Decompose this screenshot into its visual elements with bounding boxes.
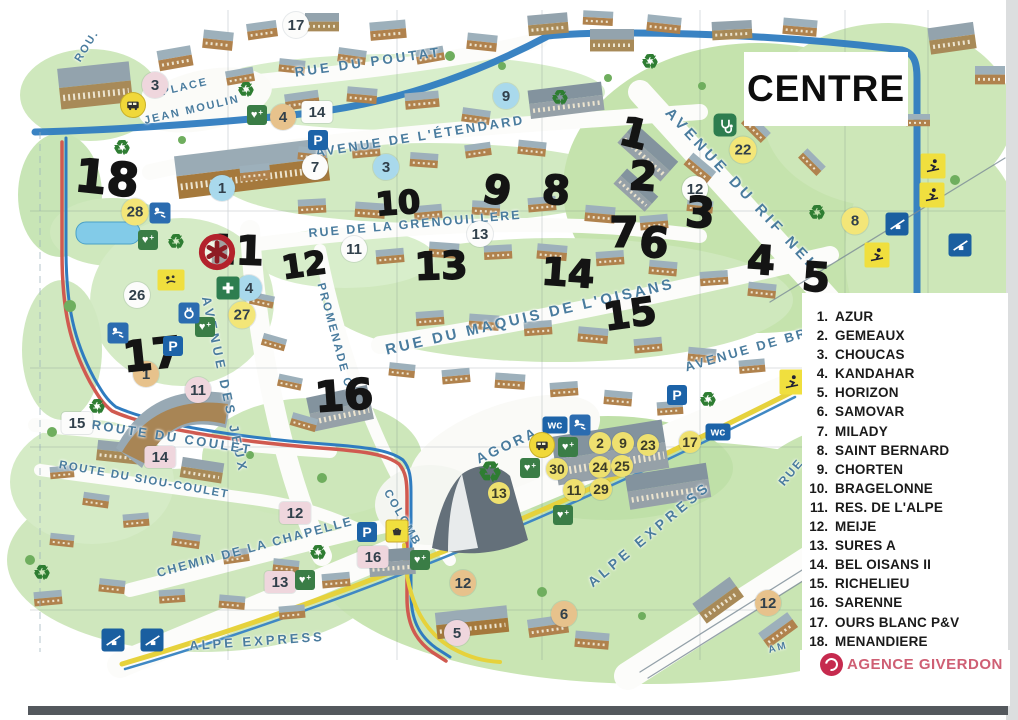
ski-jumper-icon <box>865 243 890 268</box>
wc-icon: wc <box>543 417 568 434</box>
legend-item-name: BEL OISANS II <box>835 557 931 572</box>
legend-item-number: 1. <box>802 309 835 324</box>
legend-item: 17.OURS BLANC P&V <box>802 615 1008 634</box>
legend-item-number: 17. <box>802 615 835 630</box>
parking-icon: P <box>308 130 328 150</box>
legend-item-name: RES. DE L'ALPE <box>835 500 943 515</box>
street-label: JEAN MOULIN <box>143 93 241 127</box>
plug-icon <box>179 303 200 324</box>
street-label: ALPE EXPRESS <box>189 629 325 653</box>
printed-marker: 4 <box>270 104 296 130</box>
legend-item: 3.CHOUCAS <box>802 347 1008 366</box>
plus-glyph: + <box>306 573 311 582</box>
printed-marker: 17 <box>283 12 309 38</box>
printed-marker: 1 <box>209 175 235 201</box>
street-label: AM <box>767 640 789 656</box>
bus-icon <box>120 92 146 118</box>
legend-item-name: AZUR <box>835 309 873 324</box>
legend-item-name: RICHELIEU <box>835 576 910 591</box>
pets-icon <box>158 270 185 291</box>
heart-icon: ♥+ <box>553 505 573 525</box>
agency-name: AGENCE GIVERDON <box>847 656 1003 673</box>
printed-marker: 12 <box>755 590 781 616</box>
printed-marker: 7 <box>302 154 328 180</box>
printed-marker: 30 <box>546 458 568 480</box>
legend-item-number: 14. <box>802 557 835 572</box>
legend-item-name: SURES A <box>835 538 896 553</box>
legend-item: 7.MILADY <box>802 424 1008 443</box>
printed-marker: 22 <box>730 137 757 164</box>
bus-icon <box>529 432 555 458</box>
heart-icon: ♥+ <box>558 437 578 457</box>
target-icon <box>196 231 238 273</box>
legend-item: 10.BRAGELONNE <box>802 481 1008 500</box>
legend-item-name: MILADY <box>835 424 888 439</box>
handwritten-number: 12 <box>280 246 329 284</box>
printed-marker: 13 <box>467 221 493 247</box>
printed-marker: 29 <box>590 478 612 500</box>
heart-icon: ♥+ <box>247 105 267 125</box>
recycle-icon: ♻ <box>641 50 659 75</box>
legend-item-number: 4. <box>802 366 835 381</box>
parking-icon: P <box>357 522 377 542</box>
legend-item-number: 13. <box>802 538 835 553</box>
printed-marker: 9 <box>493 83 519 109</box>
printed-marker: 5 <box>444 620 470 646</box>
printed-marker: 23 <box>637 434 659 456</box>
printed-marker: 2 <box>589 432 611 454</box>
legend-item-number: 16. <box>802 595 835 610</box>
legend-item-number: 11. <box>802 500 835 515</box>
legend-item: 13.SURES A <box>802 538 1008 557</box>
legend-list: 1.AZUR2.GEMEAUX3.CHOUCAS4.KANDAHAR5.HORI… <box>802 309 1008 653</box>
recycle-icon: ♻ <box>113 136 131 161</box>
recycle-icon: ♻ <box>699 388 717 413</box>
lift-icon <box>886 213 909 236</box>
parking-icon: P <box>667 385 687 405</box>
legend-item-number: 12. <box>802 519 835 534</box>
printed-marker: 3 <box>373 154 399 180</box>
lift-icon <box>949 234 972 257</box>
medic-icon <box>714 114 737 137</box>
wc-icon: wc <box>706 424 731 441</box>
printed-marker: 27 <box>229 302 256 329</box>
printed-marker: 14 <box>302 101 333 123</box>
agency-logo-icon <box>820 653 843 676</box>
printed-marker: 9 <box>612 432 634 454</box>
handwritten-number: 4 <box>746 240 777 282</box>
legend-item: 1.AZUR <box>802 309 1008 328</box>
printed-marker: 16 <box>358 546 389 568</box>
legend-item-name: SAINT BERNARD <box>835 443 949 458</box>
recycle-icon: ♻ <box>551 86 569 111</box>
street-label: AVENUE DE BRA <box>683 322 821 375</box>
handwritten-number: 2 <box>628 156 659 198</box>
handwritten-number: 13 <box>414 246 468 286</box>
legend-item-name: MEIJE <box>835 519 877 534</box>
legend-item: 5.HORIZON <box>802 385 1008 404</box>
legend-item: 12.MEIJE <box>802 519 1008 538</box>
legend-item-name: CHORTEN <box>835 462 903 477</box>
handwritten-number: 15 <box>601 292 659 337</box>
printed-marker: 4 <box>236 275 262 301</box>
legend-item-name: CHOUCAS <box>835 347 905 362</box>
printed-marker: 11 <box>185 377 211 403</box>
legend-item-name: SARENNE <box>835 595 902 610</box>
printed-marker: 3 <box>142 72 168 98</box>
handwritten-number: 14 <box>540 252 595 294</box>
legend-item-number: 9. <box>802 462 835 477</box>
snowboard-icon <box>920 183 945 208</box>
printed-marker: 6 <box>551 601 577 627</box>
plus-glyph: + <box>531 461 536 470</box>
legend-item-number: 7. <box>802 424 835 439</box>
lift-icon <box>102 629 125 652</box>
plus-glyph: + <box>206 320 211 329</box>
legend-item-name: HORIZON <box>835 385 899 400</box>
heart-icon: ♥+ <box>295 570 315 590</box>
legend-item-name: MENANDIERE <box>835 634 928 649</box>
pharmacy-icon <box>217 277 240 300</box>
recycle-icon: ♻ <box>167 230 185 255</box>
legend-panel: 1.AZUR2.GEMEAUX3.CHOUCAS4.KANDAHAR5.HORI… <box>802 293 1008 655</box>
printed-marker: 26 <box>124 282 150 308</box>
legend-item: 16.SARENNE <box>802 595 1008 614</box>
legend-item-name: SAMOVAR <box>835 404 904 419</box>
street-label: PLACE <box>161 76 210 98</box>
basket-icon <box>386 520 409 543</box>
recycle-icon: ♻ <box>309 541 327 566</box>
parking-icon: P <box>163 336 183 356</box>
handwritten-number: 3 <box>684 191 716 235</box>
baby-icon <box>150 203 171 224</box>
legend-item-number: 2. <box>802 328 835 343</box>
legend-item-number: 18. <box>802 634 835 649</box>
legend-item-name: BRAGELONNE <box>835 481 933 496</box>
heart-icon: ♥+ <box>138 230 158 250</box>
handwritten-number: 7 <box>609 212 638 254</box>
lift-icon <box>141 629 164 652</box>
legend-item: 9.CHORTEN <box>802 462 1008 481</box>
printed-marker: 24 <box>589 456 611 478</box>
legend-item: 4.KANDAHAR <box>802 366 1008 385</box>
plus-glyph: + <box>149 233 154 242</box>
recycle-icon: ♻ <box>808 201 826 226</box>
legend-item-number: 6. <box>802 404 835 419</box>
legend-item: 2.GEMEAUX <box>802 328 1008 347</box>
printed-marker: 14 <box>145 446 176 468</box>
plus-glyph: + <box>564 508 569 517</box>
heart-icon: ♥+ <box>520 458 540 478</box>
handwritten-number: 1 <box>616 111 653 157</box>
legend-item-name: OURS BLANC P&V <box>835 615 959 630</box>
agency-signature: AGENCE GIVERDON <box>820 653 1003 676</box>
legend-item-number: 3. <box>802 347 835 362</box>
legend-item-name: GEMEAUX <box>835 328 905 343</box>
street-label: ROU. <box>73 28 102 64</box>
printed-marker: 8 <box>842 208 869 235</box>
legend-item: 11.RES. DE L'ALPE <box>802 500 1008 519</box>
legend-item-name: KANDAHAR <box>835 366 915 381</box>
plus-glyph: + <box>421 553 426 562</box>
handwritten-number: 10 <box>375 185 422 220</box>
legend-item-number: 8. <box>802 443 835 458</box>
printed-marker: 12 <box>280 502 311 524</box>
handwritten-number: 8 <box>541 170 572 212</box>
skier-icon <box>780 370 805 395</box>
printed-marker: 25 <box>611 455 633 477</box>
map-title: CENTRE <box>744 52 908 126</box>
legend-item-number: 10. <box>802 481 835 496</box>
printed-marker: 11 <box>563 479 585 501</box>
recycle-icon: ♻ <box>477 456 502 489</box>
printed-marker: 11 <box>341 236 367 262</box>
legend-item: 8.SAINT BERNARD <box>802 443 1008 462</box>
street-label: AVENUE DE L'ÉTENDARD <box>314 112 526 160</box>
recycle-icon: ♻ <box>33 561 51 586</box>
recycle-icon: ♻ <box>237 78 255 103</box>
handwritten-number: 6 <box>637 221 670 266</box>
tennis-icon <box>921 154 946 179</box>
printed-marker: 17 <box>679 431 701 453</box>
baby-icon <box>570 415 591 436</box>
legend-item-number: 15. <box>802 576 835 591</box>
printed-marker: 13 <box>265 571 296 593</box>
heart-icon: ♥+ <box>410 550 430 570</box>
legend-item-number: 5. <box>802 385 835 400</box>
legend-item: 14.BEL OISANS II <box>802 557 1008 576</box>
plus-glyph: + <box>569 440 574 449</box>
handwritten-number: 9 <box>479 169 515 214</box>
legend-item: 15.RICHELIEU <box>802 576 1008 595</box>
street-label: RUE DU POUTAT <box>294 44 443 79</box>
handwritten-number: 16 <box>313 373 374 419</box>
scanned-map-page: ROU.RUE DU POUTATPLACEJEAN MOULINAVENUE … <box>0 0 1018 720</box>
printed-marker: 12 <box>450 570 476 596</box>
baby-icon <box>108 323 129 344</box>
legend-item: 6.SAMOVAR <box>802 404 1008 423</box>
plus-glyph: + <box>258 108 263 117</box>
recycle-icon: ♻ <box>88 395 106 420</box>
